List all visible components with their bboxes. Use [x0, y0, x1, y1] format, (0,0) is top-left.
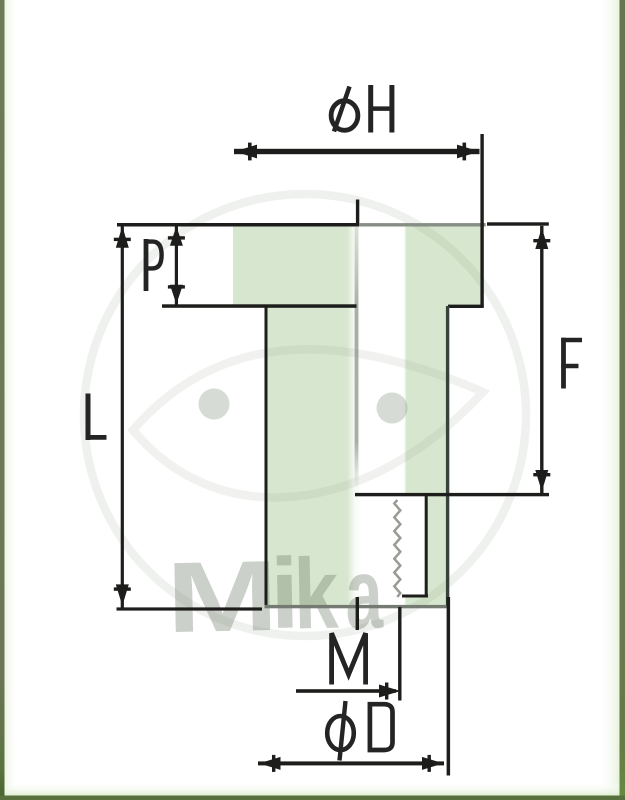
svg-text:M: M — [165, 540, 280, 654]
